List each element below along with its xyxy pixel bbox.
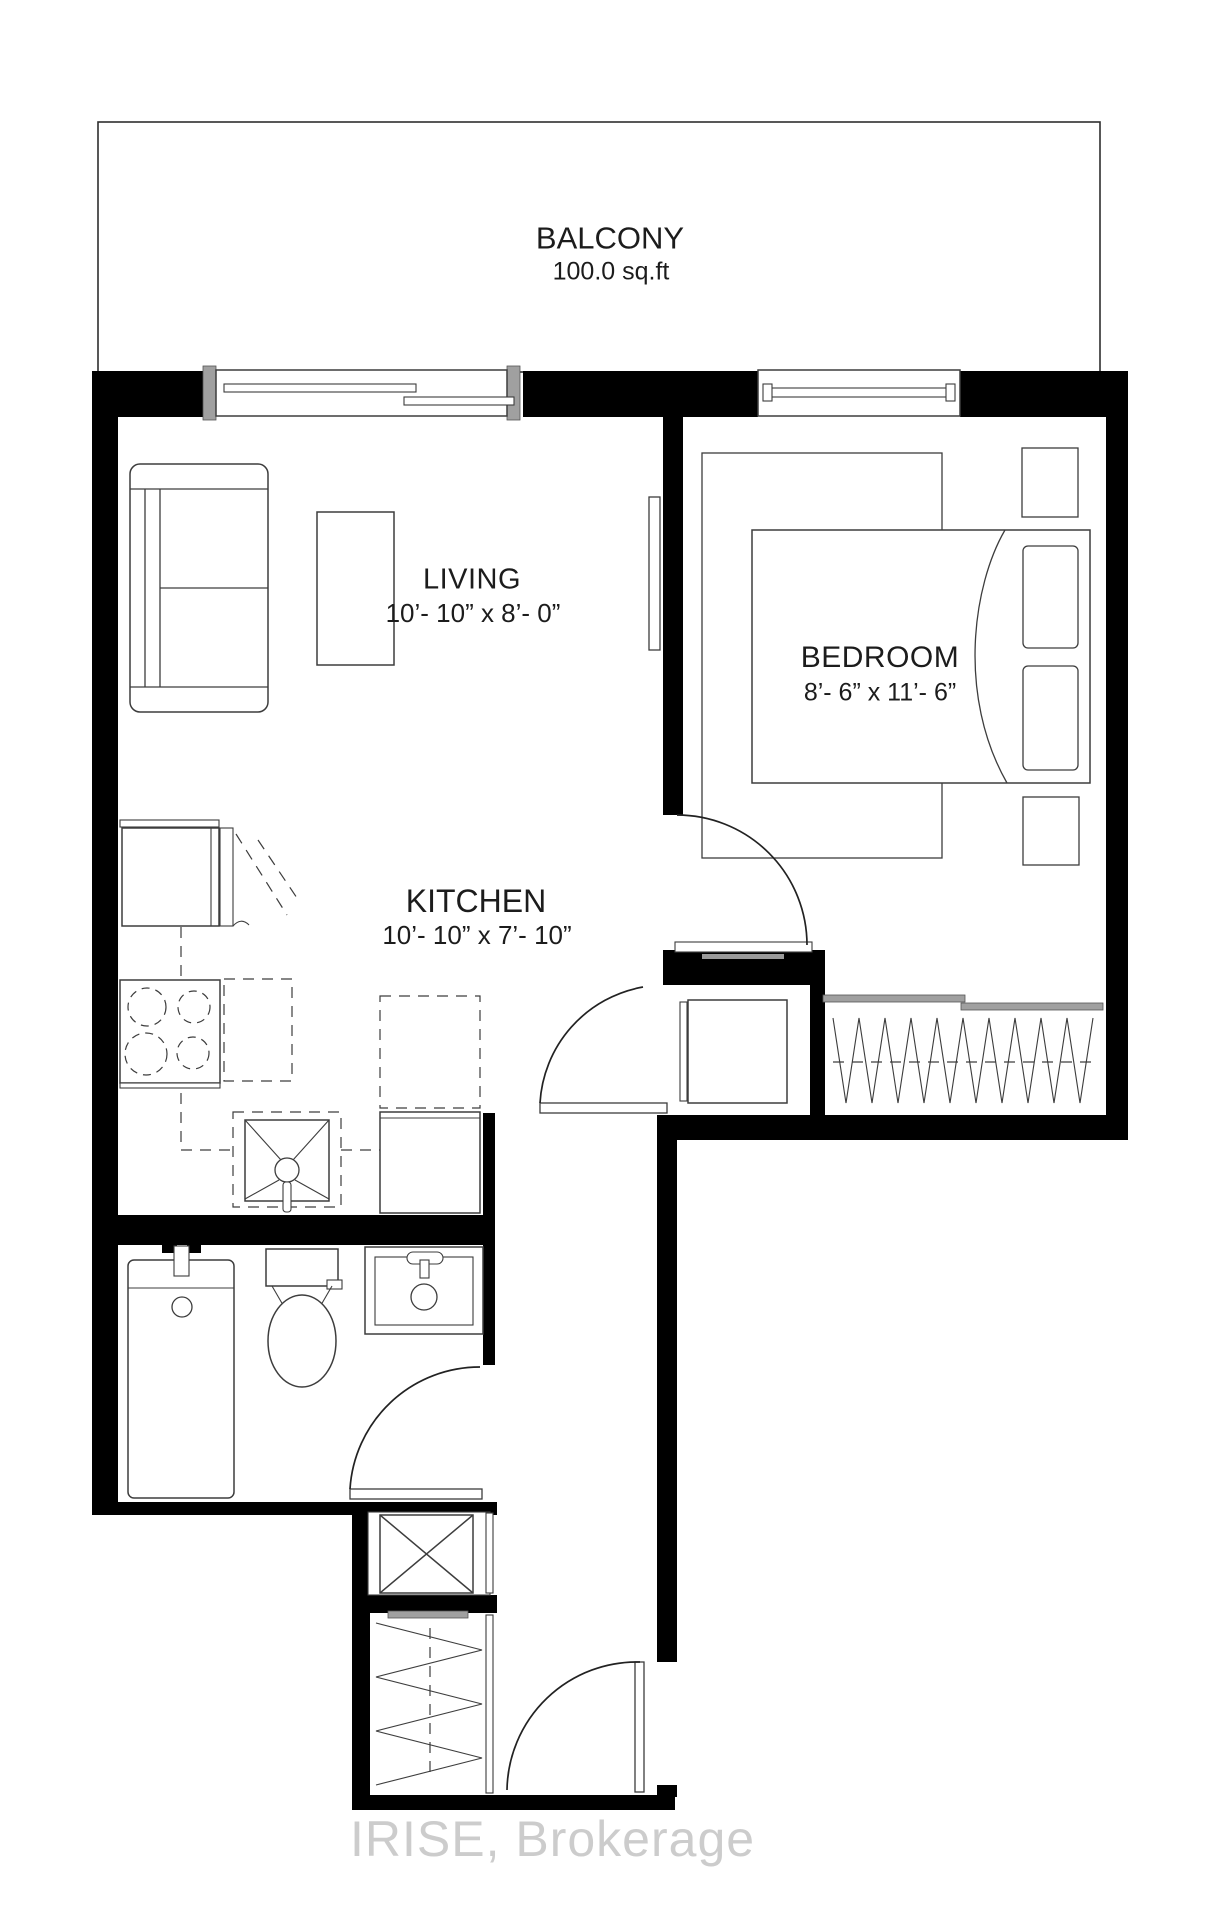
bathroom <box>128 1245 483 1499</box>
kitchen-dimensions: 10’- 10” x 7’- 10” <box>382 922 571 948</box>
kitchen-label: KITCHEN <box>406 885 546 917</box>
entry-closet <box>376 1611 493 1793</box>
bedroom-closet <box>823 995 1103 1103</box>
kitchen-cabinet <box>380 1112 480 1213</box>
kitchen-door <box>540 987 667 1113</box>
floor-plan-drawing <box>0 0 1228 1920</box>
coffee-table <box>317 512 394 665</box>
nightstand-top <box>1022 448 1078 517</box>
toilet <box>266 1249 342 1387</box>
living-window <box>203 366 520 420</box>
bathroom-sink <box>365 1247 483 1334</box>
dishwasher <box>224 979 292 1081</box>
kitchen-sink <box>233 1112 341 1212</box>
fridge <box>122 828 219 926</box>
balcony-label: BALCONY <box>536 223 684 254</box>
bedroom-dimensions: 8’- 6” x 11’- 6” <box>804 681 956 706</box>
floor-plan: BALCONY 100.0 sq.ft LIVING 10’- 10” x 8’… <box>0 0 1228 1920</box>
shaft <box>368 1512 493 1595</box>
brokerage-watermark: IRISE, Brokerage <box>350 1810 755 1868</box>
bathtub <box>128 1246 234 1498</box>
kitchen-appliances <box>120 820 480 1213</box>
stove <box>120 980 220 1083</box>
sofa <box>130 464 268 712</box>
bedroom-label: BEDROOM <box>801 643 960 673</box>
nightstand-bottom <box>1023 797 1079 865</box>
bedroom-window <box>758 370 960 416</box>
living-label: LIVING <box>423 566 521 595</box>
faucet <box>283 1182 291 1212</box>
kitchen-island-dashed <box>380 996 480 1108</box>
balcony-area-label: 100.0 sq.ft <box>553 260 670 285</box>
living-dimensions: 10’- 10” x 8’- 0” <box>386 600 561 626</box>
hall-closet-box <box>680 1000 787 1103</box>
bathroom-door <box>350 1367 482 1499</box>
bedroom-door <box>675 815 812 959</box>
entry-door <box>507 1662 644 1792</box>
tv <box>649 497 660 650</box>
